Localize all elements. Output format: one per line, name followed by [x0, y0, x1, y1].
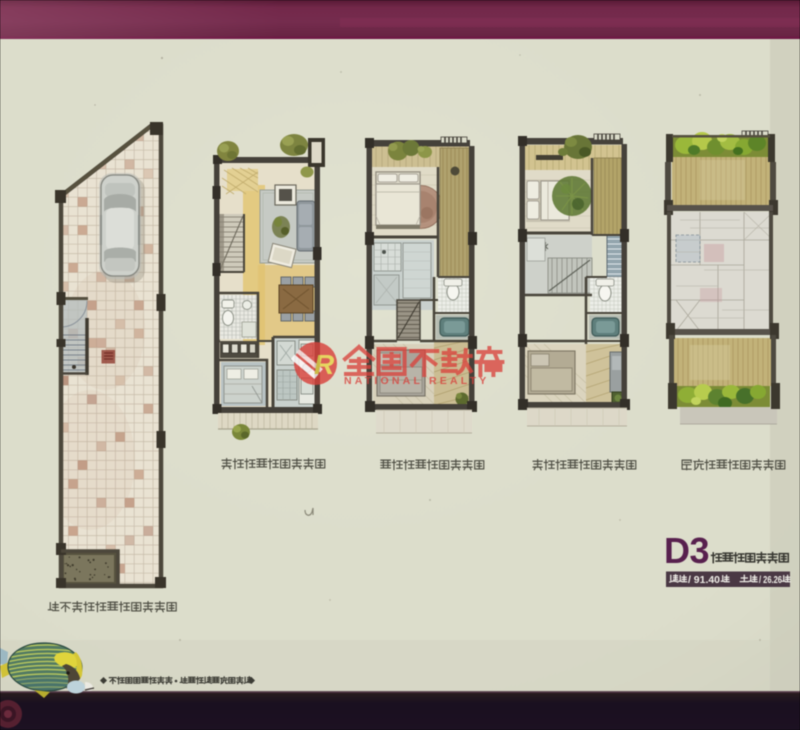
svg-text:/ 91.40: / 91.40	[688, 575, 720, 586]
svg-text:R: R	[314, 349, 335, 380]
svg-text:D3: D3	[664, 530, 709, 571]
svg-text:/ 26.26: / 26.26	[759, 575, 782, 586]
svg-text:NATIONAL REALTY: NATIONAL REALTY	[344, 375, 489, 387]
